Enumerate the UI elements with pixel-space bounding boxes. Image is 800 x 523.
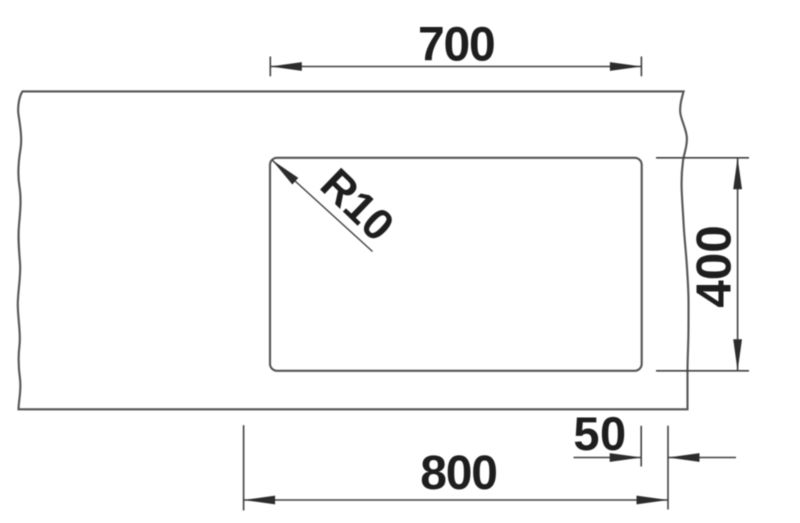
svg-text:400: 400 bbox=[686, 225, 741, 308]
svg-text:700: 700 bbox=[418, 18, 495, 71]
svg-text:800: 800 bbox=[420, 447, 497, 500]
svg-text:50: 50 bbox=[573, 407, 626, 460]
